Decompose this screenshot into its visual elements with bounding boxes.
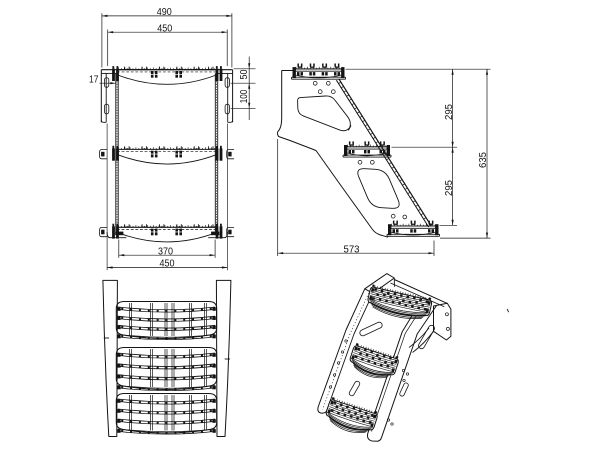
svg-text:490: 490	[157, 7, 172, 18]
svg-text:17: 17	[89, 74, 99, 85]
svg-text:635: 635	[478, 152, 489, 168]
svg-text:573: 573	[344, 244, 360, 255]
svg-text:295: 295	[444, 180, 455, 196]
svg-text:295: 295	[444, 104, 455, 120]
svg-text:450: 450	[160, 259, 175, 270]
svg-text:370: 370	[158, 246, 173, 257]
svg-text:100: 100	[239, 89, 250, 103]
svg-text:450: 450	[157, 23, 172, 34]
svg-text:50: 50	[239, 69, 250, 79]
